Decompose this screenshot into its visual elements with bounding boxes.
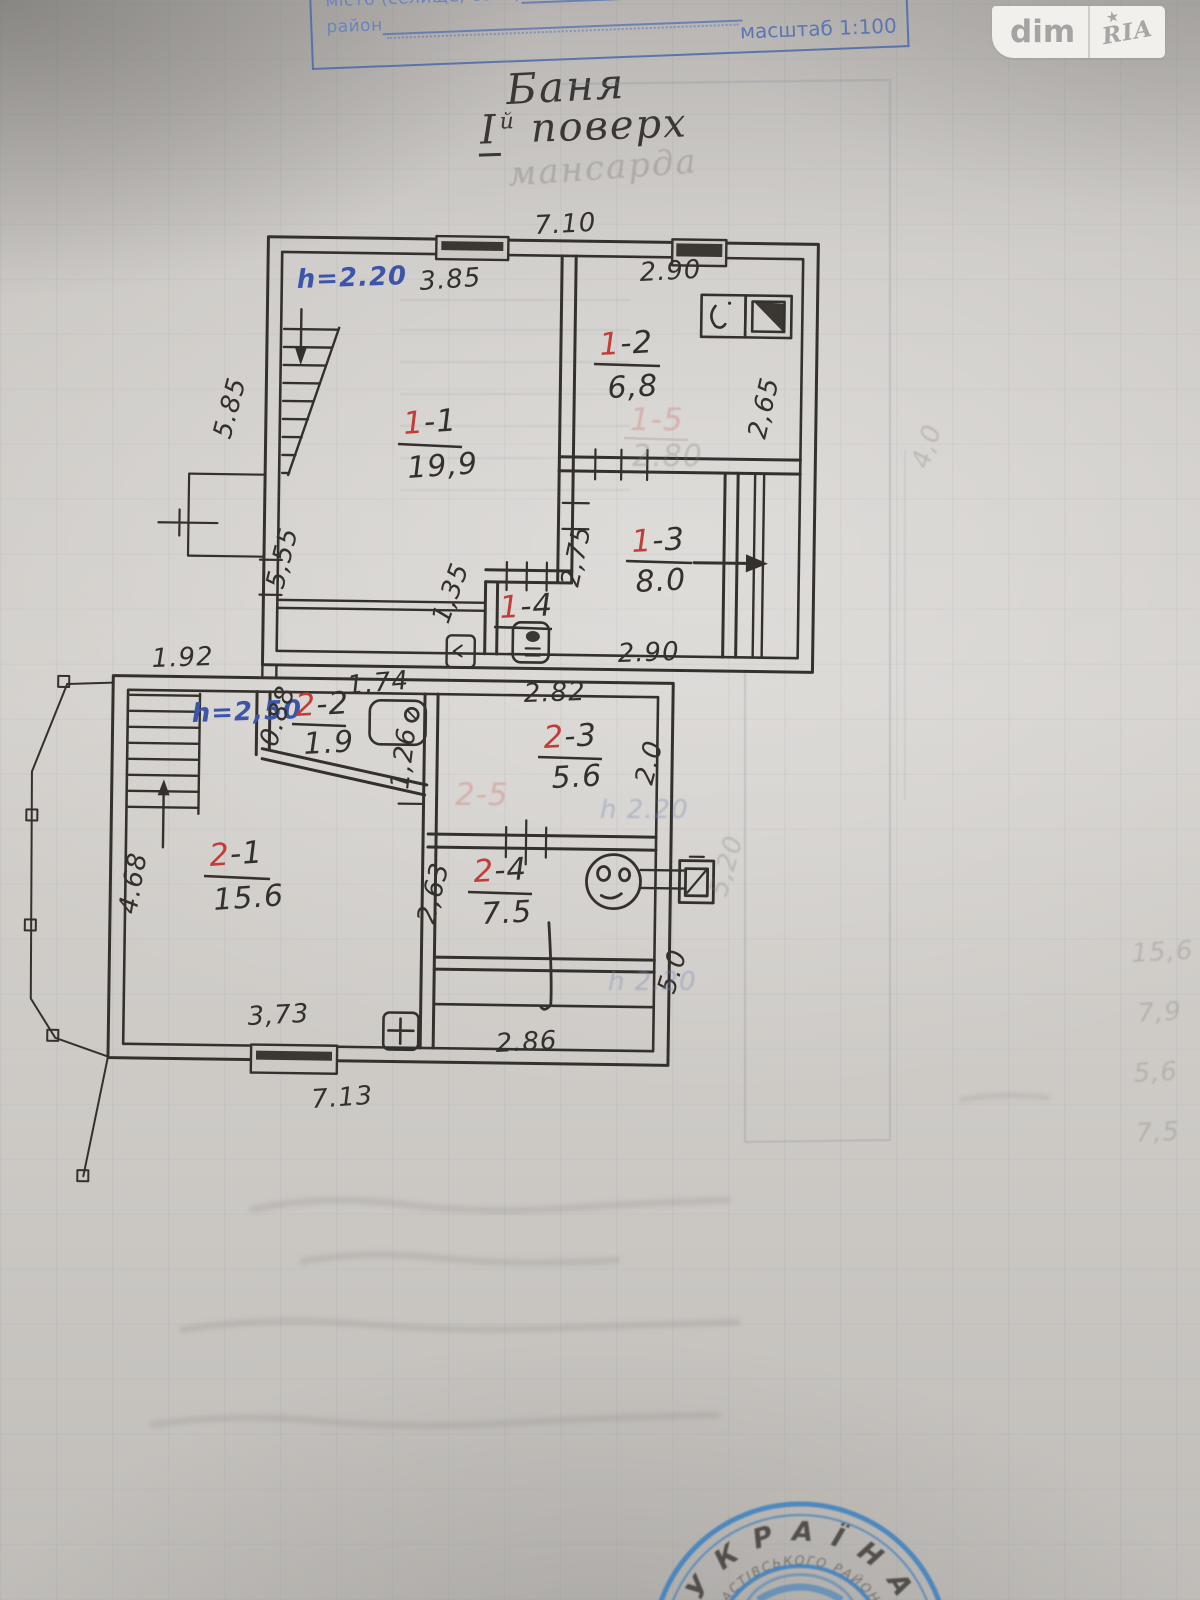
room-1-2-label: 1-2: [599, 324, 654, 363]
stairs-upper: [282, 309, 339, 476]
vent-icon: [446, 635, 474, 667]
stairs-lower: [128, 693, 200, 848]
lower-window: [251, 1045, 337, 1074]
room-1-4-label: 1-4: [499, 587, 554, 626]
handwriting-bleed: [150, 1095, 1050, 1425]
svg-text:7,5: 7,5: [1135, 1117, 1181, 1149]
room-2-2-area: 1.9: [303, 724, 355, 762]
washbasin-icon: [701, 295, 746, 338]
room-1-3-area: 8.0: [635, 562, 687, 600]
bleed-room-1-5: 1-5: [630, 402, 684, 438]
floor-plan-drawing: 7.10 h=2.20 3.85 2.90 5.85 5,55 2,75 2,6…: [0, 0, 1200, 1600]
room-1-1-label: 1-1: [402, 402, 458, 442]
dim-1-74: 1.74: [346, 666, 410, 701]
dim-7-13: 7.13: [310, 1081, 374, 1115]
dim-1-92: 1.92: [151, 642, 214, 674]
dim-3-85: 3.85: [418, 263, 482, 297]
svg-text:15,6: 15,6: [1131, 936, 1194, 969]
room-1-1-area: 19,9: [406, 446, 479, 486]
room-2-3-label: 2-3: [543, 717, 598, 756]
room-2-2-label: 2-2: [295, 685, 350, 724]
boiler-icon: [586, 854, 714, 910]
door-arrow-1-3: [694, 554, 768, 573]
room-1-3-label: 1-3: [631, 521, 686, 560]
dim-2-63: 2,63: [412, 859, 456, 926]
bleed-number-column: 15,6 7,9 5,6 7,5: [1131, 936, 1194, 1149]
bleed-h-2-20: h 2.20: [600, 795, 689, 825]
room-2-1-area: 15.6: [212, 878, 285, 918]
dim-3-73: 3,73: [247, 999, 310, 1032]
room-1-2-area: 6,8: [607, 368, 659, 406]
stove-icon: [745, 295, 792, 338]
dim-2-75: 2,75: [556, 523, 598, 590]
dim-2-82: 2.82: [523, 677, 586, 709]
bleed-room-2-5: 2-5: [455, 777, 509, 813]
dim-2-90-bottom: 2.90: [617, 637, 680, 669]
room-2-1-label: 2-1: [208, 834, 264, 874]
bleed-area-2-80: 2.80: [632, 439, 703, 474]
bleed-dim-4-0: 4,0: [906, 421, 948, 472]
furnace-icon: [383, 1012, 419, 1049]
dim-2-90-top: 2.90: [639, 255, 702, 288]
room-2-4-area: 7.5: [481, 894, 533, 932]
dim-5-55: 5,55: [261, 524, 305, 591]
height-upper: h=2.20: [296, 261, 407, 295]
bleed-h-lower: h 2.20: [608, 967, 697, 997]
svg-text:5,6: 5,6: [1133, 1057, 1179, 1089]
dim-4-68: 4.68: [113, 850, 153, 916]
dim-1-35: 1,35: [426, 559, 475, 627]
dim-total-top: 7.10: [534, 208, 597, 241]
terrace-outline: [21, 675, 113, 1181]
dim-5-85: 5.85: [208, 374, 253, 442]
room-2-4-label: 2-4: [473, 851, 528, 890]
bleed-dim-5-20: 5,20: [704, 832, 750, 900]
svg-text:7,9: 7,9: [1137, 997, 1183, 1029]
dim-2-86: 2.86: [495, 1026, 558, 1059]
dim-2-65: 2,65: [743, 375, 786, 442]
dim-1-26: 1,26: [385, 726, 422, 791]
plan-geometry: [21, 230, 818, 1191]
dim-2-0: 2.0: [630, 737, 670, 787]
room-2-3-area: 5.6: [551, 758, 603, 796]
